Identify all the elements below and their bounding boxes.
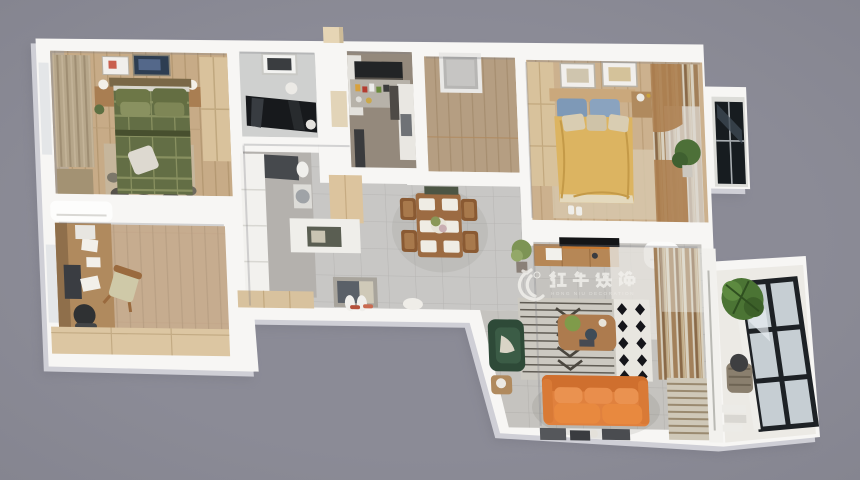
svg-text:HONG NIU DECORATION: HONG NIU DECORATION (551, 291, 635, 296)
